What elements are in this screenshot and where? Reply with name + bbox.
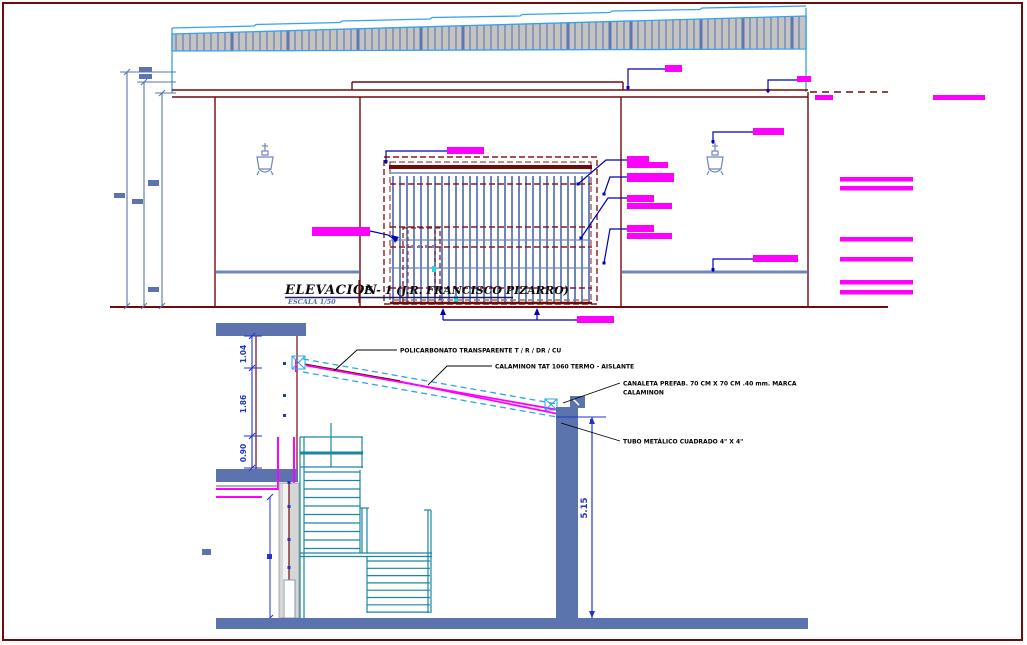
section-pilaster	[279, 481, 299, 618]
section-wall-dimensions: 1.04 1.86 0.90	[239, 333, 262, 471]
elevation-dimension-lines	[120, 69, 176, 309]
stair-flight-upper	[304, 472, 360, 549]
label-roof-panel: CALAMINON TAT 1060 TERMO - AISLANTE	[495, 364, 634, 371]
stair-flight-lower	[367, 561, 430, 612]
upper-slab	[216, 323, 306, 336]
dim-column-height: 5.15	[580, 497, 590, 518]
title-right: E - 1 (J.R. FRANCISCO PIZARRO)	[363, 284, 569, 297]
sheet-border	[3, 3, 1022, 640]
scale-note: ESCALA 1/50	[287, 298, 336, 306]
wall-lamp-left	[257, 143, 273, 175]
gate-cyan-tick-1	[432, 266, 436, 272]
label-gutter-line2: CALAMINON	[623, 390, 664, 397]
drawing-svg: ELEVACION E - 1 (J.R. FRANCISCO PIZARRO)…	[0, 0, 1027, 645]
floor-slab	[216, 618, 808, 629]
label-tube: TUBO METÁLICO CUADRADO 4" X 4"	[623, 439, 743, 446]
lower-slab	[216, 469, 298, 482]
label-polycarbonate: POLICARBONATO TRANSPARENTE T / R / DR / …	[400, 348, 561, 355]
label-gutter-line1: CANALETA PREFAB. 70 CM X 70 CM .40 mm. M…	[623, 381, 797, 388]
dim-sill: 0.90	[239, 444, 248, 463]
wall-fixing-dots	[283, 362, 286, 417]
wall-lamp-right	[707, 143, 723, 175]
elevation-dimension-text-blocks	[114, 67, 159, 292]
dim-wall: 1.86	[239, 395, 248, 414]
section-wall	[216, 323, 306, 497]
gate-lintel	[389, 165, 592, 169]
cad-drawing-sheet: ELEVACION E - 1 (J.R. FRANCISCO PIZARRO)…	[0, 0, 1027, 645]
legend-note-blocks	[840, 177, 913, 295]
entrance-gate	[384, 157, 597, 304]
roof-band	[172, 6, 806, 93]
dim-parapet: 1.04	[239, 345, 248, 364]
section-stairs	[300, 423, 432, 618]
inner-dimension-line	[202, 494, 273, 621]
